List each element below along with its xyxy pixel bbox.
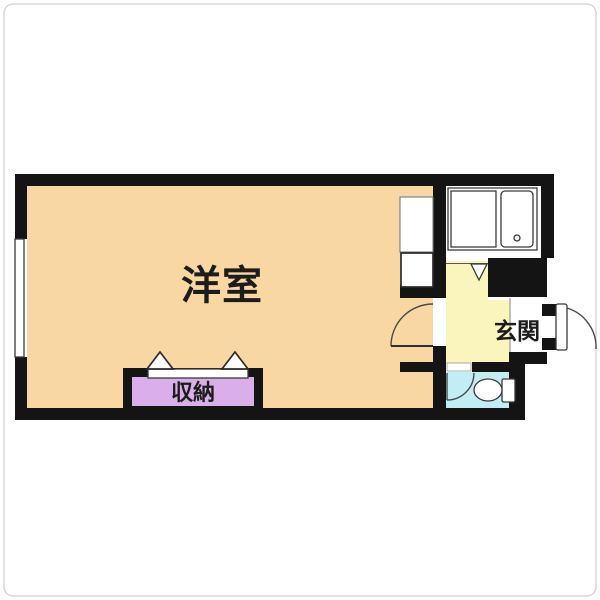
- closet-label: 収納: [171, 380, 215, 405]
- window: [15, 239, 24, 357]
- toilet-door-opening: [447, 363, 471, 371]
- entrance-label: 玄関: [494, 318, 540, 344]
- counter-unit: [400, 197, 433, 252]
- closet-door-track: [148, 369, 248, 378]
- floorplan: 洋室 収納 玄関: [0, 0, 600, 600]
- floorplan-canvas: 洋室 収納 玄関: [0, 0, 600, 600]
- wall-living-right-lower: [433, 346, 446, 420]
- stove-knob: [514, 235, 520, 241]
- wall-toilet-top: [472, 362, 512, 372]
- wall-top: [15, 174, 554, 186]
- toilet-tank: [502, 379, 515, 402]
- wall-entrance-block: [488, 258, 547, 297]
- living-room-label: 洋室: [181, 264, 263, 308]
- wall-right-upper: [541, 174, 554, 258]
- counter-sink: [451, 191, 496, 247]
- living-door-opening: [433, 298, 446, 346]
- toilet-bowl: [474, 379, 502, 401]
- wall-corner-stub: [400, 362, 433, 372]
- appliance-box: [401, 253, 433, 287]
- wall-living-right-upper: [433, 174, 446, 298]
- front-door-arc: [567, 308, 596, 349]
- front-door-leaf: [556, 304, 567, 350]
- wall-left-upper: [15, 174, 27, 239]
